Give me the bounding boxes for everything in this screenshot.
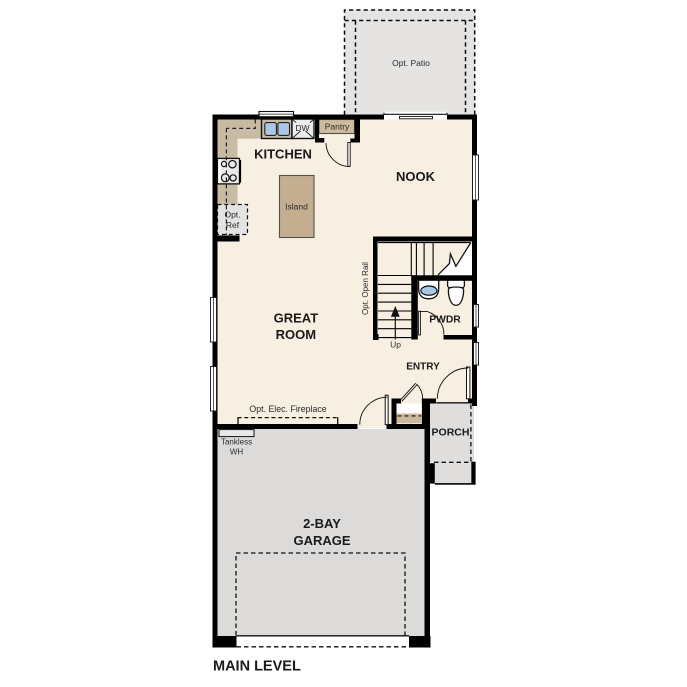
svg-text:Opt. Patio: Opt. Patio — [392, 58, 430, 68]
svg-text:2-BAY: 2-BAY — [303, 516, 341, 531]
svg-text:ROOM: ROOM — [276, 327, 316, 342]
svg-text:DW: DW — [295, 123, 309, 133]
svg-text:Ref: Ref — [226, 220, 240, 230]
svg-text:KITCHEN: KITCHEN — [254, 147, 312, 162]
svg-text:Opt. Elec. Fireplace: Opt. Elec. Fireplace — [249, 404, 326, 414]
svg-text:PWDR: PWDR — [429, 314, 461, 325]
svg-text:Pantry: Pantry — [325, 122, 350, 132]
svg-text:Tankless: Tankless — [221, 438, 252, 447]
svg-text:GREAT: GREAT — [274, 310, 319, 325]
svg-text:GARAGE: GARAGE — [293, 533, 350, 548]
svg-text:Opt. Open Rail: Opt. Open Rail — [361, 262, 370, 315]
svg-text:NOOK: NOOK — [396, 169, 436, 184]
svg-text:Island: Island — [285, 202, 308, 212]
svg-text:PORCH: PORCH — [432, 427, 470, 439]
svg-text:ENTRY: ENTRY — [406, 362, 440, 373]
svg-text:Up: Up — [390, 339, 401, 349]
svg-text:MAIN LEVEL: MAIN LEVEL — [213, 659, 301, 675]
svg-text:WH: WH — [230, 448, 244, 457]
